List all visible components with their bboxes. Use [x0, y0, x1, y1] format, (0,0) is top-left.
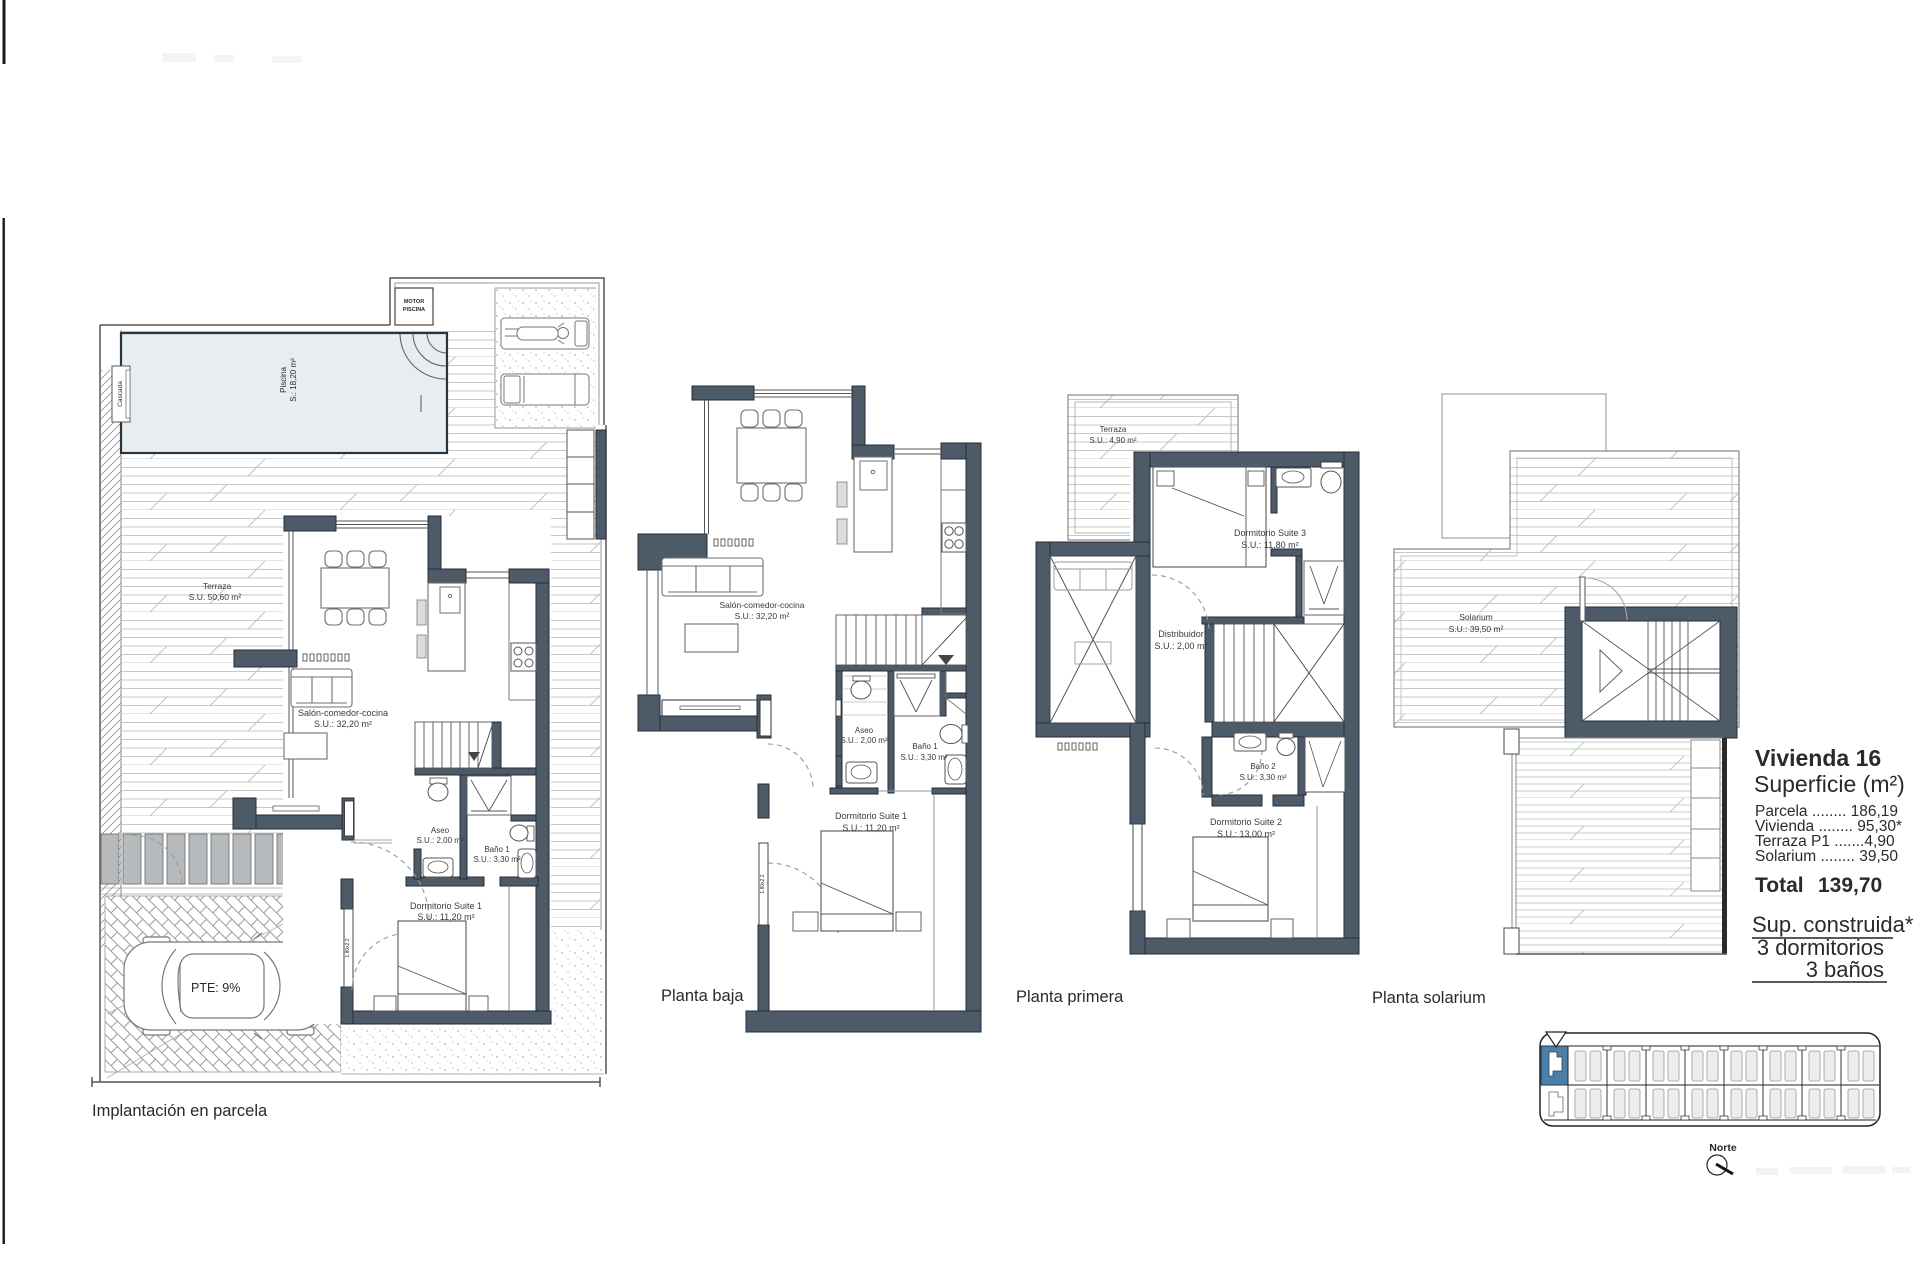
svg-text:Cascada: Cascada — [117, 381, 124, 407]
svg-text:PISCINA: PISCINA — [403, 307, 425, 313]
svg-text:Distribuidor: Distribuidor — [1158, 629, 1204, 639]
svg-text:Solarium: Solarium — [1459, 612, 1493, 622]
svg-text:S.U.: 11,20 m²: S.U.: 11,20 m² — [417, 912, 474, 922]
svg-text:S.U.: 3,30 m²: S.U.: 3,30 m² — [900, 753, 947, 762]
svg-text:Dormitorio Suite 1: Dormitorio Suite 1 — [835, 811, 907, 821]
svg-text:S.U.: 13,00 m²: S.U.: 13,00 m² — [1217, 829, 1275, 839]
svg-text:Implantación en parcela: Implantación en parcela — [92, 1102, 268, 1120]
svg-text:Planta baja: Planta baja — [661, 987, 744, 1005]
svg-text:Dormitorio Suite 1: Dormitorio Suite 1 — [410, 901, 482, 911]
svg-text:Piscina: Piscina — [279, 367, 288, 393]
svg-text:Salón-comedor-cocina: Salón-comedor-cocina — [298, 708, 388, 718]
svg-text:Planta solarium: Planta solarium — [1372, 989, 1486, 1007]
svg-text:S.U.: 11,20 m²: S.U.: 11,20 m² — [842, 823, 899, 833]
svg-text:Norte: Norte — [1709, 1142, 1737, 1154]
svg-text:3 baños: 3 baños — [1806, 957, 1884, 982]
svg-text:Total: Total — [1755, 874, 1804, 897]
svg-text:139,70: 139,70 — [1818, 874, 1882, 897]
svg-text:S.U.: 4,90 m²: S.U.: 4,90 m² — [1089, 436, 1136, 445]
svg-text:S.U. 50,60 m²: S.U. 50,60 m² — [189, 592, 242, 602]
svg-text:Terraza: Terraza — [203, 581, 232, 591]
svg-text:Aseo: Aseo — [855, 726, 874, 735]
svg-text:Vivienda 16: Vivienda 16 — [1755, 745, 1881, 771]
svg-text:S.U.: 2,00 m²: S.U.: 2,00 m² — [840, 736, 887, 745]
svg-text:Terraza: Terraza — [1100, 425, 1127, 434]
svg-text:MOTOR: MOTOR — [404, 299, 424, 305]
svg-text:Planta primera: Planta primera — [1016, 988, 1124, 1006]
svg-text:Baño 1: Baño 1 — [484, 845, 510, 854]
svg-text:S.U.: 39,50 m²: S.U.: 39,50 m² — [1449, 624, 1504, 634]
svg-text:Superficie (m²): Superficie (m²) — [1754, 771, 1905, 797]
svg-text:Baño 1: Baño 1 — [912, 742, 938, 751]
svg-text:S.U.: 2,00 m²: S.U.: 2,00 m² — [1154, 641, 1207, 651]
svg-text:S.U.: 3,30 m²: S.U.: 3,30 m² — [1239, 773, 1286, 782]
svg-text:S.U.: 3,30 m²: S.U.: 3,30 m² — [473, 855, 520, 864]
svg-text:S.U.: 11,80 m²: S.U.: 11,80 m² — [1241, 540, 1298, 550]
svg-text:Sup. construida*: Sup. construida* — [1752, 912, 1914, 937]
svg-text:Solarium ........ 39,50: Solarium ........ 39,50 — [1755, 848, 1898, 865]
svg-text:Dormitorio Suite 2: Dormitorio Suite 2 — [1210, 817, 1282, 827]
svg-text:Baño 2: Baño 2 — [1250, 762, 1276, 771]
svg-text:Aseo: Aseo — [431, 826, 450, 835]
svg-text:1.80x2.2: 1.80x2.2 — [760, 874, 766, 893]
svg-text:PTE: 9%: PTE: 9% — [191, 981, 240, 995]
svg-text:Dormitorio Suite 3: Dormitorio Suite 3 — [1234, 528, 1306, 538]
svg-text:S.U.: 32,20 m²: S.U.: 32,20 m² — [735, 611, 790, 621]
svg-text:S.U.: 2,00 m²: S.U.: 2,00 m² — [416, 836, 463, 845]
svg-text:S.: 18,20 m²: S.: 18,20 m² — [289, 358, 298, 402]
svg-text:1.80x2.2: 1.80x2.2 — [345, 938, 351, 957]
svg-text:Salón-comedor-cocina: Salón-comedor-cocina — [719, 600, 804, 610]
svg-text:S.U.: 32,20 m²: S.U.: 32,20 m² — [314, 719, 372, 729]
